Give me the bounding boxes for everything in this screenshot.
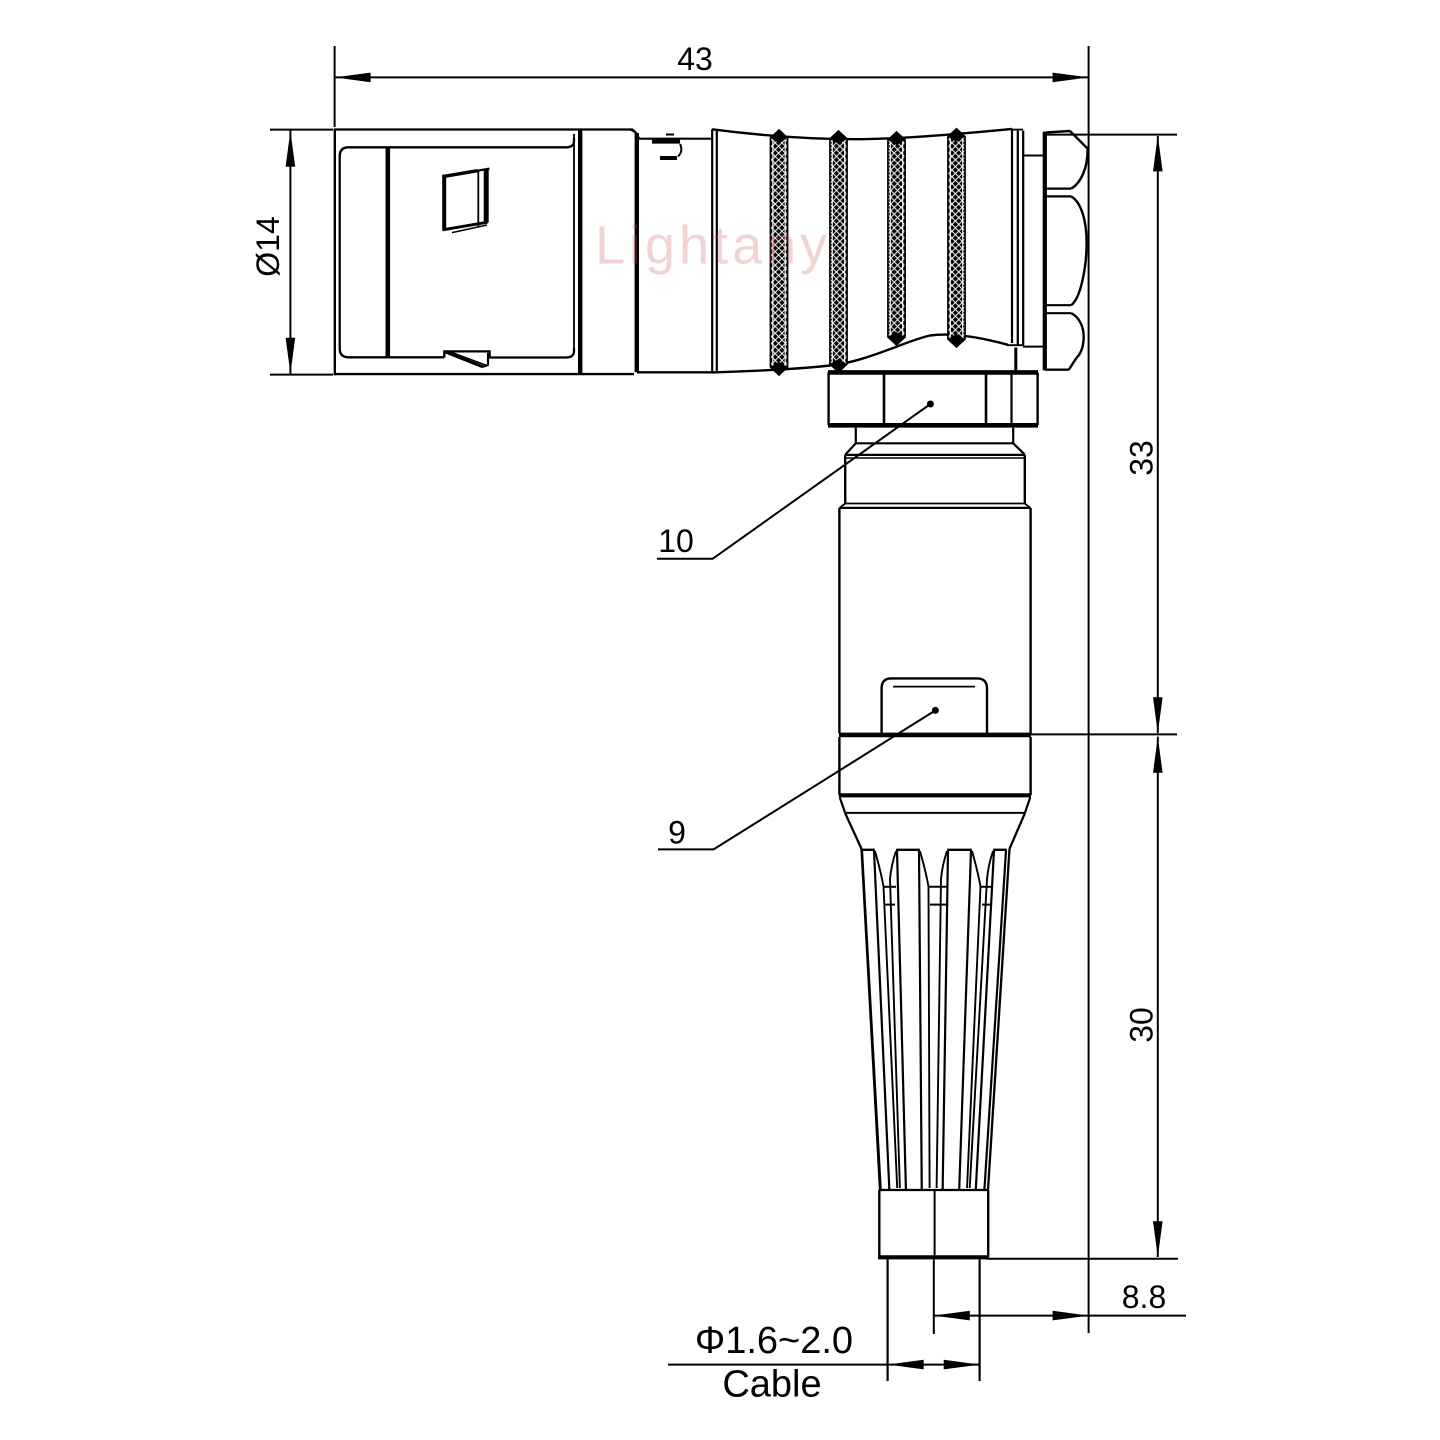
svg-text:Ø14: Ø14: [250, 216, 286, 276]
svg-text:Cable: Cable: [722, 1364, 821, 1406]
svg-text:10: 10: [658, 523, 694, 559]
svg-text:9: 9: [668, 815, 686, 851]
svg-text:8.8: 8.8: [1122, 1279, 1166, 1315]
svg-text:33: 33: [1124, 440, 1160, 476]
svg-text:30: 30: [1124, 1007, 1160, 1043]
svg-text:Lightany: Lightany: [595, 216, 831, 276]
svg-text:Φ1.6~2.0: Φ1.6~2.0: [695, 1320, 853, 1362]
svg-text:43: 43: [677, 41, 713, 77]
